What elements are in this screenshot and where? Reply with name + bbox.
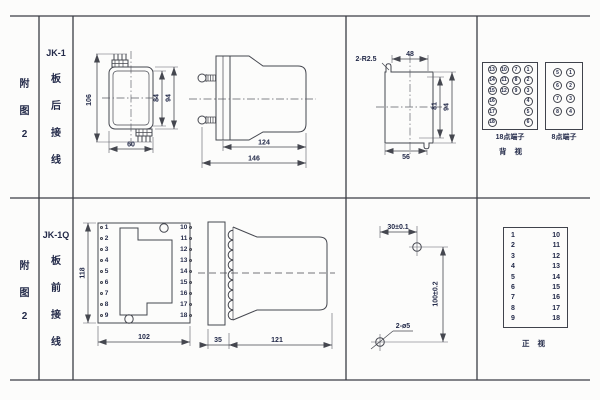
- panel-terminal: 2: [100, 235, 116, 242]
- terminal-dot-icon: [189, 270, 192, 273]
- terminal-circle: [500, 107, 509, 116]
- figure-label-char: 图: [20, 102, 30, 117]
- drill-hole-note-label: 2-ø5: [396, 323, 411, 330]
- terminal-dot-icon: [189, 248, 192, 251]
- terminal-circle: [500, 97, 509, 106]
- terminal-circle: 6: [553, 81, 562, 90]
- terminal-circle: 7: [512, 65, 521, 74]
- panel-terminal: 7: [100, 290, 116, 297]
- terminal-dot-icon: [100, 237, 103, 240]
- terminal-circle: 1: [524, 65, 533, 74]
- model-column-row2: JK-1Q 板前接线: [39, 198, 73, 380]
- rear-view-drawing: 106 84 94 60: [86, 51, 178, 153]
- terminal-circle: 13: [488, 65, 497, 74]
- panel-terminal: 14: [172, 268, 192, 275]
- terminal-dot-icon: [100, 281, 103, 284]
- front-view-left-column: 123456789: [511, 232, 515, 322]
- figure-label-char: 附: [20, 257, 30, 272]
- rear-width-dim-label: 60: [127, 142, 135, 149]
- panel-terminal: 1: [100, 224, 116, 231]
- terminal-circle: 5: [553, 68, 562, 77]
- mounting-screw-lower: [198, 116, 216, 124]
- terminal-circle: 16: [488, 97, 497, 106]
- terminal-dot-icon: [100, 270, 103, 273]
- side-view-drawing-row1: 124 146: [189, 56, 316, 168]
- figure-label-row1: 附图2: [10, 16, 39, 198]
- front-terminal-number: 12: [552, 253, 560, 260]
- terminal-circle: 14: [488, 76, 497, 85]
- mounting-hole-bottom: [125, 315, 133, 323]
- cutout-inner-height-dim-label: 81: [432, 102, 439, 110]
- front-terminal-number: 2: [511, 242, 515, 249]
- front-view-box: 123456789 101112131415161718: [503, 227, 568, 328]
- front-terminal-number: 18: [552, 315, 560, 322]
- terminal-block-8: 51627384: [545, 62, 583, 130]
- panel-terminal: 16: [172, 290, 192, 297]
- panel-terminal: 12: [172, 246, 192, 253]
- terminal-circle: 4: [524, 97, 533, 106]
- figure-label-char: 2: [22, 129, 28, 140]
- terminal-circle: 17: [488, 107, 497, 116]
- terminal-circle: 9: [512, 86, 521, 95]
- terminal-circle: [512, 118, 521, 127]
- rear-outer-height-dim-label: 94: [166, 94, 173, 102]
- terminal-circle: 10: [500, 65, 509, 74]
- terminal-circle: 18: [488, 118, 497, 127]
- rear-inner-height-dim-label: 84: [154, 94, 161, 102]
- terminal-dot-icon: [100, 248, 103, 251]
- terminal-dot-icon: [189, 314, 192, 317]
- wiring-label-char: 接: [51, 124, 61, 139]
- panel-terminal: 4: [100, 257, 116, 264]
- side1-body-length-dim-label: 124: [258, 140, 270, 147]
- figure-label-char: 2: [22, 311, 28, 322]
- side-view-drawing-row2: 35 121: [198, 222, 335, 349]
- front-view-right-column: 101112131415161718: [552, 232, 560, 322]
- cutout-slot-note-label: 2-R2.5: [355, 56, 376, 63]
- terminal-dot-icon: [189, 292, 192, 295]
- terminal-dot-icon: [189, 303, 192, 306]
- front-terminal-number: 9: [511, 315, 515, 322]
- terminal-circle: 1: [566, 68, 575, 77]
- panel-terminal: 6: [100, 279, 116, 286]
- panel-terminal: 3: [100, 246, 116, 253]
- terminal-circle: 12: [500, 86, 509, 95]
- terminal-block-18: 131071141182151293164175186: [482, 62, 538, 130]
- terminal-dot-icon: [189, 237, 192, 240]
- panel-left-terminals: 123456789: [100, 224, 116, 319]
- front-terminal-number: 15: [552, 284, 560, 291]
- panel-terminal: 17: [172, 301, 192, 308]
- front-terminal-number: 1: [511, 232, 515, 239]
- wiring-label-char: 线: [51, 151, 61, 166]
- terminal-circle: [500, 118, 509, 127]
- mounting-hole-top: [160, 224, 168, 232]
- terminal-circle: 11: [500, 76, 509, 85]
- cutout-bottom-width-dim-label: 56: [402, 154, 410, 161]
- terminal-circle: 5: [524, 107, 533, 116]
- wiring-label-char: 接: [51, 306, 61, 321]
- terminal-circle: 15: [488, 86, 497, 95]
- front-terminal-number: 16: [552, 294, 560, 301]
- panel-terminal: 8: [100, 301, 116, 308]
- terminal-circle: [512, 97, 521, 106]
- front-terminal-number: 5: [511, 274, 515, 281]
- terminal18-caption: 18点端子: [482, 132, 538, 142]
- wiring-label-char: 线: [51, 333, 61, 348]
- panel-terminal: 10: [172, 224, 192, 231]
- drill-vertical-dim-label: 100±0.2: [433, 281, 440, 306]
- cutout-outer-height-dim-label: 94: [444, 103, 451, 111]
- drill-horizontal-dim-label: 30±0.1: [387, 224, 408, 231]
- terminal-circle: 2: [524, 76, 533, 85]
- wiring-label-row2: 板前接线: [51, 252, 61, 348]
- terminal-circle: 7: [553, 94, 562, 103]
- front-terminal-number: 8: [511, 305, 515, 312]
- terminal-dot-icon: [100, 259, 103, 262]
- panel-terminal: 11: [172, 235, 192, 242]
- panel-width-dim-label: 102: [138, 334, 150, 341]
- front-terminal-number: 6: [511, 284, 515, 291]
- terminal-dot-icon: [100, 226, 103, 229]
- terminal-dot-icon: [100, 314, 103, 317]
- terminal-circle: 3: [566, 94, 575, 103]
- panel-right-terminals: 101112131415161718: [172, 224, 192, 319]
- front-view-caption: 正 视: [500, 338, 570, 349]
- terminal-circle: 2: [566, 81, 575, 90]
- side2-front-depth-dim-label: 35: [214, 337, 222, 344]
- terminal-circle: 8: [553, 107, 562, 116]
- front-terminal-number: 10: [552, 232, 560, 239]
- panel-terminal: 5: [100, 268, 116, 275]
- panel-cutout-drawing: 2-R2.5 48 81 94 56: [355, 51, 456, 161]
- panel-terminal: 13: [172, 257, 192, 264]
- terminal-dot-icon: [189, 281, 192, 284]
- terminal-dot-icon: [189, 259, 192, 262]
- rear-view-caption: 背 视: [480, 146, 544, 157]
- wiring-label-char: 板: [51, 252, 61, 267]
- wiring-label-row1: 板后接线: [51, 70, 61, 166]
- side1-total-length-dim-label: 146: [248, 156, 260, 163]
- mounting-screw-upper: [198, 74, 216, 82]
- terminal-dot-icon: [100, 303, 103, 306]
- terminal-circle: [512, 107, 521, 116]
- rear-height-dim-label: 106: [86, 94, 93, 106]
- terminal8-caption: 8点端子: [545, 132, 583, 142]
- terminal-circle: 8: [512, 76, 521, 85]
- model-label-row1: JK-1: [46, 48, 66, 58]
- model-label-row2: JK-1Q: [43, 230, 70, 240]
- panel-terminal: 18: [172, 312, 192, 319]
- figure-label-char: 附: [20, 75, 30, 90]
- front-terminal-number: 13: [552, 263, 560, 270]
- model-column-row1: JK-1 板后接线: [39, 16, 73, 198]
- drawing-sheet: 106 84 94 60 124 146: [0, 0, 600, 400]
- front-terminal-number: 17: [552, 305, 560, 312]
- wiring-label-char: 后: [51, 97, 61, 112]
- terminal-dot-icon: [100, 292, 103, 295]
- front-terminal-number: 14: [552, 274, 560, 281]
- front-terminal-number: 4: [511, 263, 515, 270]
- terminal-circle: 6: [524, 118, 533, 127]
- drill-pattern-drawing: 30±0.1 100±0.2 2-ø5: [371, 224, 448, 351]
- wiring-label-char: 板: [51, 70, 61, 85]
- panel-terminal: 9: [100, 312, 116, 319]
- cutout-slot-span-dim-label: 48: [406, 51, 414, 58]
- panel-terminal: 15: [172, 279, 192, 286]
- front-terminal-number: 7: [511, 294, 515, 301]
- front-terminal-number: 3: [511, 253, 515, 260]
- figure-label-row2: 附图2: [10, 198, 39, 380]
- front-terminal-number: 11: [552, 242, 560, 249]
- terminal-circle: 4: [566, 107, 575, 116]
- terminal-circle: 3: [524, 86, 533, 95]
- figure-label-char: 图: [20, 284, 30, 299]
- wiring-label-char: 前: [51, 279, 61, 294]
- terminal-dot-icon: [189, 226, 192, 229]
- side2-body-length-dim-label: 121: [271, 337, 283, 344]
- panel-height-dim-label: 118: [80, 267, 87, 278]
